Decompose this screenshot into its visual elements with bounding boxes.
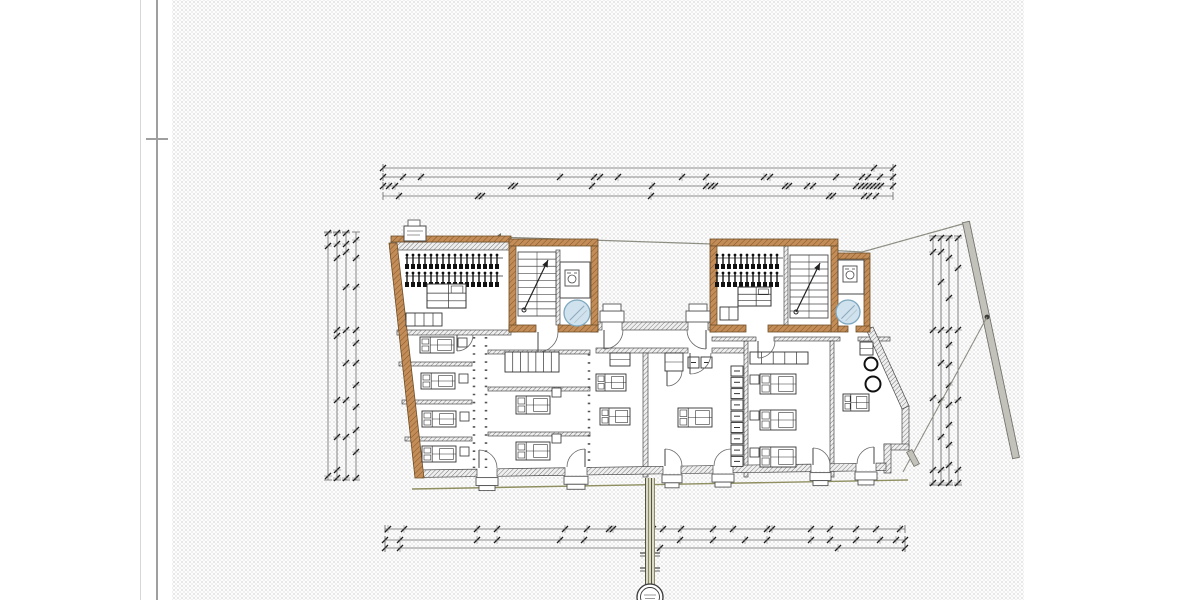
locker-column: [731, 366, 743, 466]
legend-box: [404, 220, 426, 241]
drawing-sheet: [0, 0, 1200, 600]
section-cut-marker: [637, 478, 663, 600]
floor-plan-svg: [0, 0, 1200, 600]
courtyard-door-sills: [600, 304, 710, 322]
